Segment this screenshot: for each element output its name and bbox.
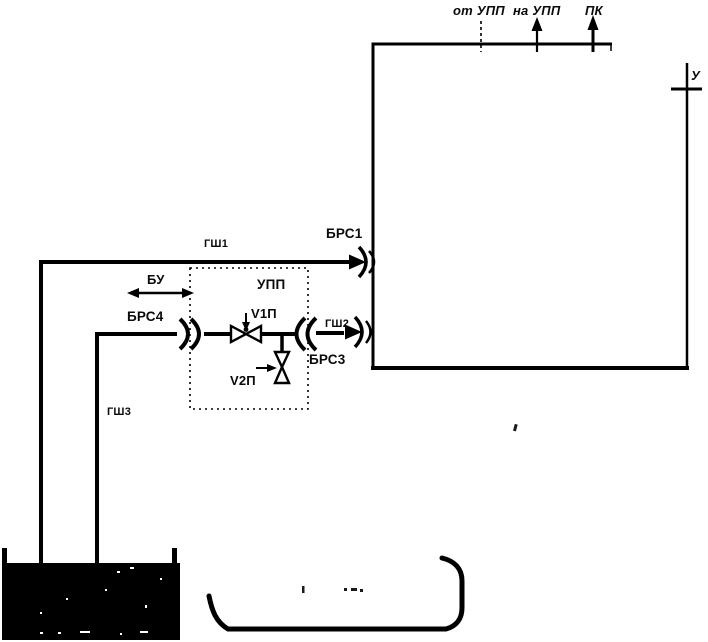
fuel-tank-body (2, 563, 180, 640)
label-na-upp: на УПП (513, 4, 560, 17)
pipe-gsh3 (97, 334, 177, 565)
top-ports (481, 15, 599, 52)
stray-marks (302, 424, 518, 593)
v2p-valve-icon (275, 352, 289, 383)
label-pk: ПК (585, 4, 603, 17)
fuel-tank (2, 548, 180, 640)
brs3-coupling-socket-icon (308, 318, 317, 350)
label-gsh3: ГШ3 (107, 407, 131, 418)
hose-trough-curve (209, 558, 462, 629)
bu-arrow-left-icon (127, 288, 139, 298)
label-v1p: V1П (251, 307, 277, 320)
label-ot-upp: от УПП (453, 4, 505, 17)
v2p-pointer-arrow-icon (267, 364, 277, 372)
bu-range (127, 288, 194, 298)
brs3-coupling-icon (297, 318, 306, 350)
schematic-canvas: от УПП на УПП ПК У БРС1 ГШ1 БУ УПП БРС4 … (0, 0, 708, 642)
label-brs3: БРС3 (309, 353, 345, 367)
label-bu: БУ (147, 273, 165, 286)
label-brs4: БРС4 (127, 310, 163, 324)
label-u: У (691, 69, 700, 82)
brs4-coupling-icon (180, 319, 188, 349)
gsh3-lower-line (97, 313, 371, 565)
label-v2p: V2П (230, 374, 256, 387)
gsh1-hose (41, 247, 374, 565)
pk-unit-top-left-edge (373, 44, 612, 368)
fuel-tank-right-wall (172, 548, 177, 565)
schematic-linework (0, 0, 708, 642)
label-brs1: БРС1 (326, 227, 362, 241)
label-gsh2: ГШ2 (325, 319, 349, 330)
na-upp-arrow-up-icon (532, 17, 543, 31)
bu-arrow-right-icon (182, 288, 194, 298)
pipe-gsh1 (41, 262, 349, 565)
fuel-tank-left-wall (2, 548, 7, 565)
label-gsh1: ГШ1 (204, 239, 228, 250)
pk-unit-outline (371, 44, 702, 368)
brs4-coupling-socket-icon (191, 319, 199, 349)
gsh2-coupling-socket-icon (366, 321, 371, 343)
label-upp: УПП (257, 278, 285, 292)
